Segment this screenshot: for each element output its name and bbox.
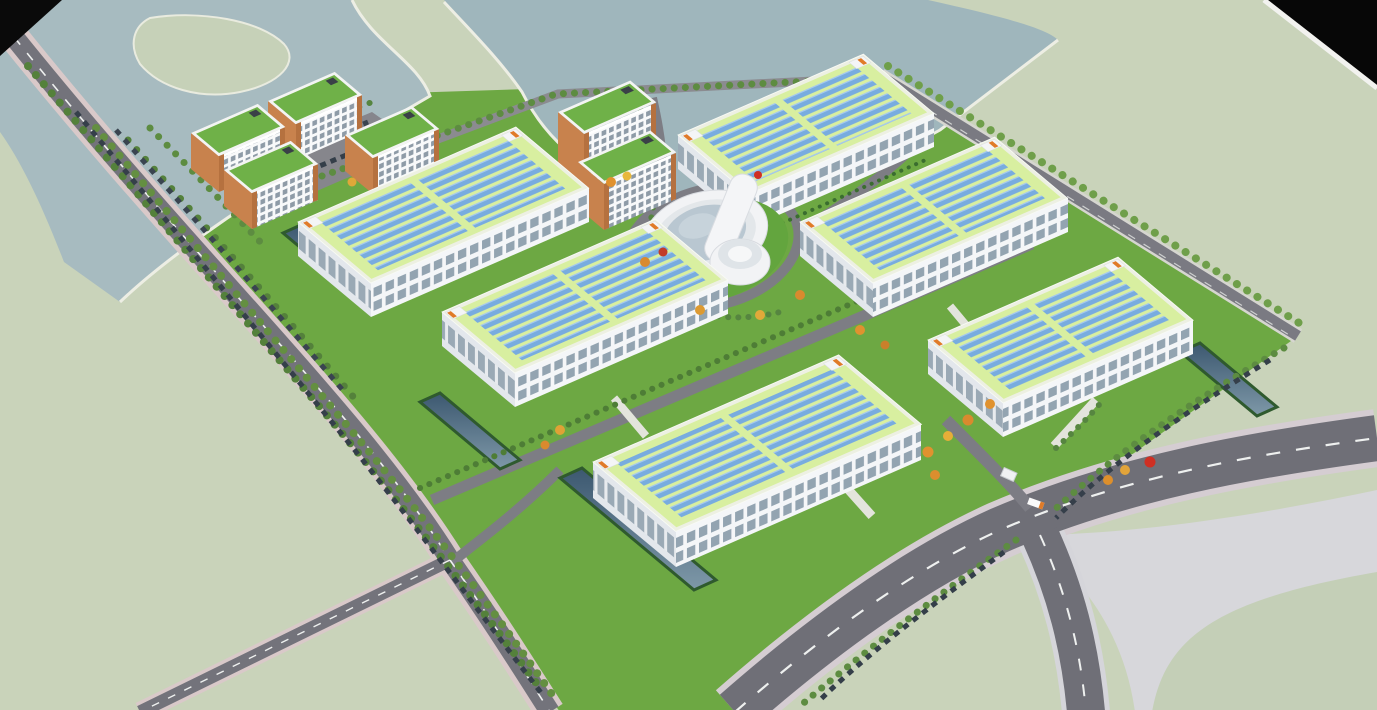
dorm-1-pilaster-left [219, 154, 224, 192]
autumn-tree [623, 172, 632, 181]
autumn-tree [348, 178, 357, 187]
autumn-tree [606, 177, 616, 187]
autumn-tree [855, 325, 865, 335]
autumn-tree [640, 257, 650, 267]
dorm-3-pilaster-right [313, 164, 318, 202]
autumn-tree [943, 431, 953, 441]
admin-rotunda-core [728, 246, 752, 262]
tower-2-pilaster-right [671, 153, 676, 201]
industrial-park-rendering [0, 0, 1377, 710]
autumn-tree [1103, 475, 1113, 485]
autumn-tree-red [1145, 457, 1156, 468]
autumn-tree [555, 425, 565, 435]
tower-2-pilaster-left [604, 182, 609, 230]
autumn-tree [795, 290, 805, 300]
dorm-3-pilaster-left [252, 191, 257, 229]
autumn-tree [963, 415, 974, 426]
autumn-tree [985, 399, 995, 409]
autumn-tree [755, 310, 765, 320]
autumn-tree-red [754, 171, 762, 179]
autumn-tree [541, 441, 550, 450]
autumn-tree [1120, 465, 1130, 475]
rendering-canvas: Aerial rendering of an industrial park c… [0, 0, 1377, 710]
dorm-2-pilaster-right [357, 95, 362, 133]
autumn-tree [881, 341, 890, 350]
autumn-tree [930, 470, 940, 480]
autumn-tree [695, 305, 705, 315]
autumn-tree [923, 447, 934, 458]
autumn-tree [659, 248, 668, 257]
